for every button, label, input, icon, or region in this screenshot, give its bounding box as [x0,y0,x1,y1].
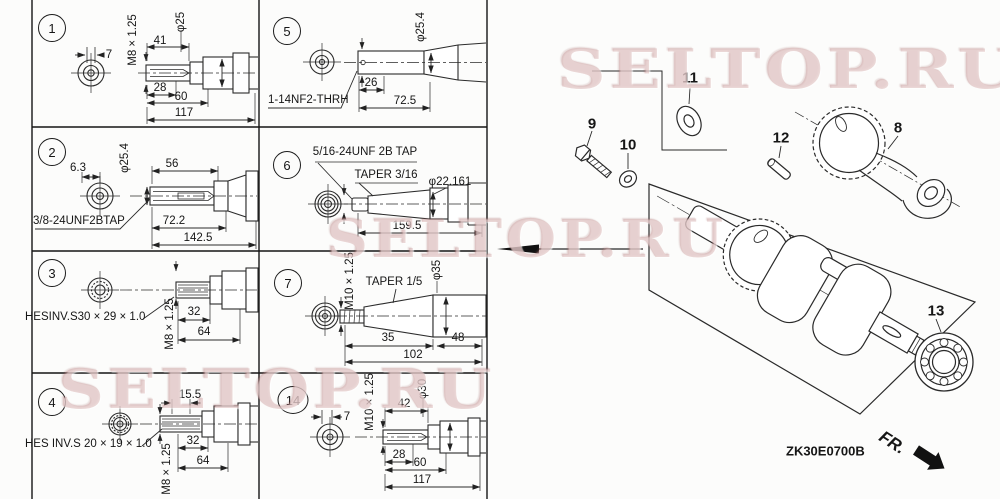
dim-label: 72.5 [394,95,416,107]
thread-label: 3/8-24UNF2BTAP [33,215,125,227]
taper-label: TAPER 3/16 [354,169,417,181]
cell-number-5: 5 [273,17,301,45]
dim-label: 64 [198,326,211,338]
dia-label: φ35 [431,260,443,280]
dim-label: 142.5 [184,232,213,244]
spline-label: HESINV.S30 × 29 × 1.0 [25,311,145,323]
dim-label: 117 [175,107,193,119]
dim-label: 48 [452,332,465,344]
dia-label: φ25 [175,12,187,32]
cell-number-6: 6 [273,151,301,179]
parts-catalog-page: 1 5 2 6 3 7 4 14 7 M8 × 1.25 41 φ25 28 6… [0,0,1000,499]
thread-label: M8 × 1.25 [127,14,139,65]
part-number-12: 12 [773,130,790,147]
dim-label: 15.5 [179,389,201,401]
drawing-code: ZK30E0700B [786,444,865,459]
fr-arrow-icon [910,441,950,477]
dim-label: 6.3 [70,162,86,174]
dim-label: 7 [344,411,350,423]
dim-label: 60 [414,457,427,469]
thread-label: M8 × 1.25 [161,443,173,494]
dim-label: 28 [393,449,406,461]
washer-11 [672,102,706,140]
dim-label: 64 [197,455,210,467]
exploded-view [497,71,987,477]
dim-label: 42 [398,398,411,410]
dia-label: φ30 [417,379,429,399]
parts-diagram-svg [0,0,1000,499]
cell4-drawing [102,399,258,472]
dim-label: 26 [365,77,378,89]
dim-label: 102 [403,349,422,361]
cell-number-3: 3 [38,259,66,287]
bolt-9 [572,142,614,180]
dim-label: 159.5 [393,220,422,232]
thread-label: M8 × 1.25 [164,298,176,349]
cell-number-14: 14 [278,386,309,414]
part-number-9: 9 [588,116,596,133]
cell-number-4: 4 [38,388,66,416]
thread-label: M10 × 1.25 [344,252,356,310]
dim-label: 7 [106,49,112,61]
tap-label: 5/16-24UNF 2B TAP [313,146,417,158]
dim-label: 72.2 [163,215,185,227]
part-number-8: 8 [894,120,902,137]
dim-label: 41 [154,35,167,47]
dim-label: 35 [382,332,395,344]
dim-label: 28 [154,82,167,94]
dia-label: φ22.161 [429,176,472,188]
part-number-13: 13 [928,303,945,320]
leader-bracket [592,71,727,150]
dia-label: φ25.4 [415,12,427,42]
thread-label: M10 × 1.25 [364,373,376,431]
cell14-drawing [310,399,486,491]
taper-label: TAPER 1/5 [366,276,423,288]
balancer-8 [795,107,962,218]
washer-10 [616,168,639,191]
cell-number-2: 2 [38,138,66,166]
table-grid [32,0,487,499]
spline-label: HES INV.S 20 × 19 × 1.0 [25,438,152,450]
dim-label: 56 [166,158,179,170]
cell7-drawing [305,281,486,366]
part-number-11: 11 [682,70,698,87]
dim-label: 117 [413,474,431,486]
bearing-13 [915,319,973,391]
reference-arrow [497,245,643,254]
part-number-10: 10 [620,137,637,154]
pin-12 [766,158,791,181]
dim-label: 32 [187,435,200,447]
cell2-drawing [35,166,258,249]
cell-number-1: 1 [38,14,66,42]
dim-label: 32 [188,306,201,318]
dim-label: 60 [175,91,188,103]
thread-label: 1-14NF2-THRH [268,94,349,106]
dia-label: φ25.4 [119,143,131,173]
cell-number-7: 7 [274,269,302,297]
